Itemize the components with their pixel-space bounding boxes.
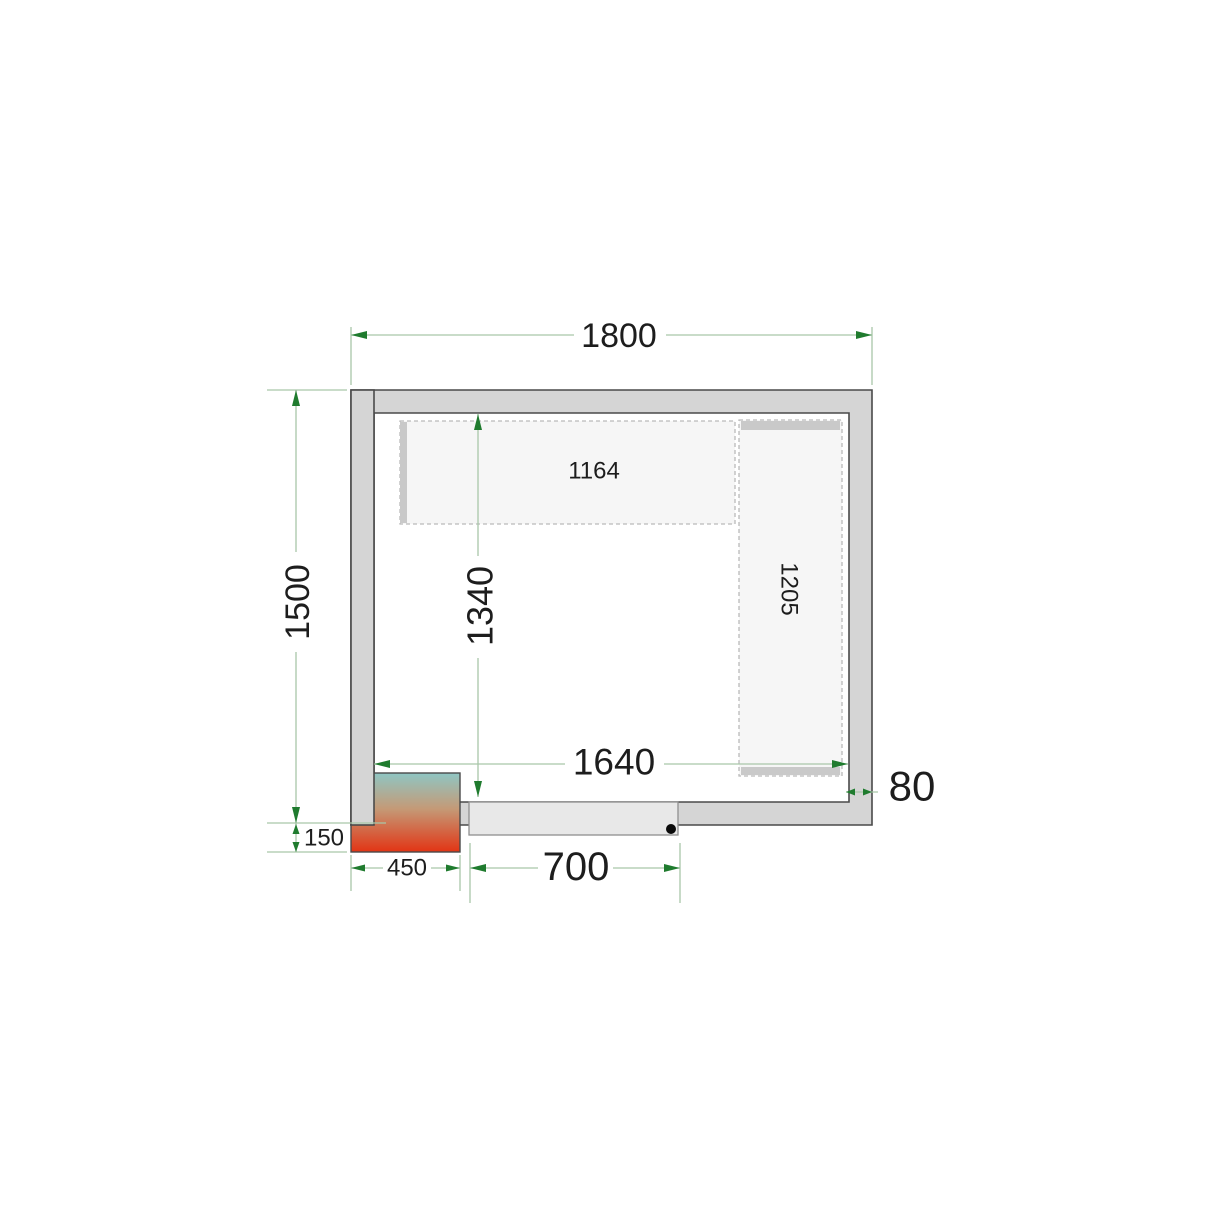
dim-arrow-down (293, 842, 300, 852)
label-right-shelf-length: 1205 (776, 562, 803, 615)
door (469, 802, 678, 835)
dim-arrow-left (351, 865, 365, 872)
right-shelf-bottom-support-bar (741, 767, 840, 775)
label-top-shelf-length: 1164 (568, 458, 620, 485)
dim-arrow-down (292, 807, 300, 823)
dim-arrow-up (293, 824, 300, 834)
dim-arrow-left (470, 864, 486, 872)
floor-plan-svg: 1800 1500 150 450 700 (0, 0, 1214, 1214)
dim-arrow-right (664, 864, 680, 872)
cold-room-dimension-diagram: 1800 1500 150 450 700 (0, 0, 1214, 1214)
dim-cooling-unit-protrusion: 150 (267, 823, 347, 852)
dim-outer-width: 1800 (351, 317, 872, 385)
dim-label-outer-depth: 1500 (279, 564, 317, 640)
dim-cooling-unit-width: 450 (351, 855, 460, 892)
top-shelf-support-bar (400, 422, 407, 523)
dim-label-door-width: 700 (543, 845, 610, 889)
dim-arrow-right (856, 331, 872, 339)
door-pivot-dot (666, 824, 676, 834)
dim-arrow-up (292, 390, 300, 406)
dim-label-inner-depth: 1340 (460, 566, 501, 646)
dim-label-inner-width: 1640 (573, 742, 655, 783)
left-wall-overlay (351, 390, 374, 825)
dim-label-unit-width: 450 (387, 855, 427, 882)
right-shelf-top-support-bar (741, 421, 840, 430)
dim-label-unit-protrusion: 150 (304, 825, 344, 852)
dim-label-outer-width: 1800 (581, 317, 657, 355)
dim-label-wall-thickness: 80 (889, 763, 936, 810)
dim-arrow-right (446, 865, 460, 872)
dim-arrow-left (374, 760, 390, 768)
dim-arrow-left (351, 331, 367, 339)
dim-arrow-down (474, 781, 482, 797)
dim-door-width: 700 (470, 843, 680, 903)
door-panel (469, 802, 678, 835)
